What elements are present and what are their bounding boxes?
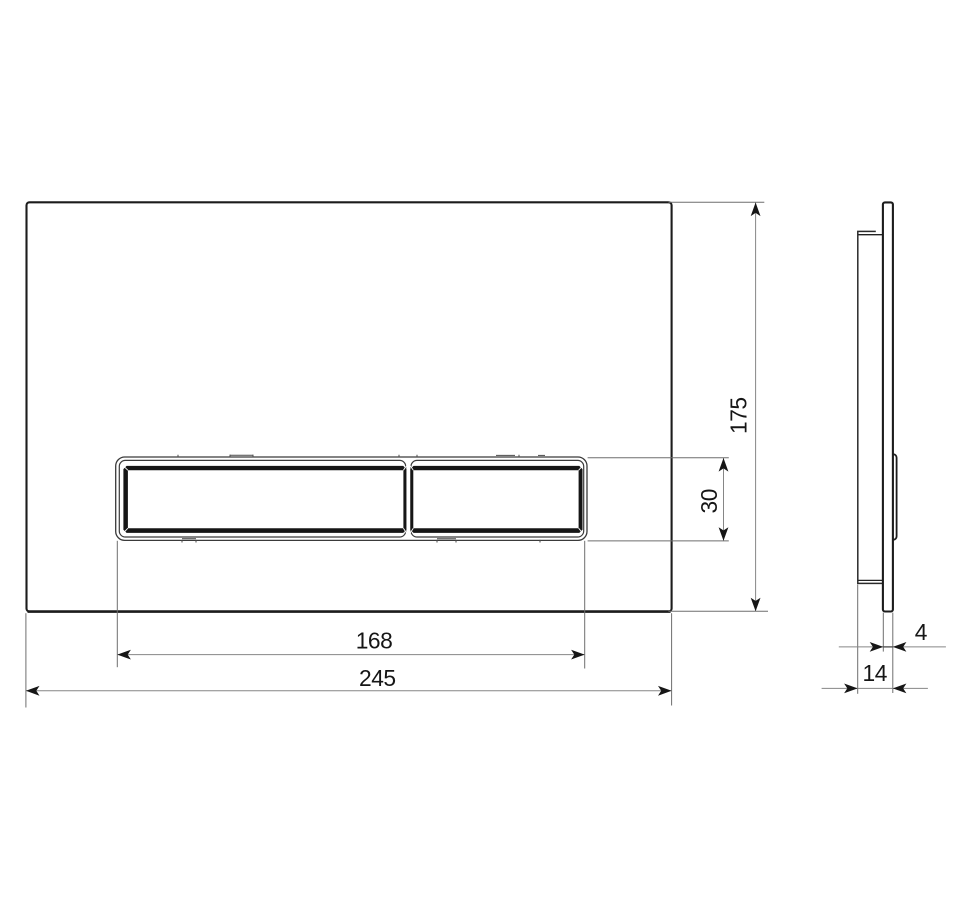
svg-text:14: 14 [863,660,888,686]
svg-text:175: 175 [726,397,752,434]
svg-text:30: 30 [696,489,722,513]
svg-text:245: 245 [359,665,396,691]
svg-text:168: 168 [356,627,393,653]
svg-text:4: 4 [915,619,928,645]
